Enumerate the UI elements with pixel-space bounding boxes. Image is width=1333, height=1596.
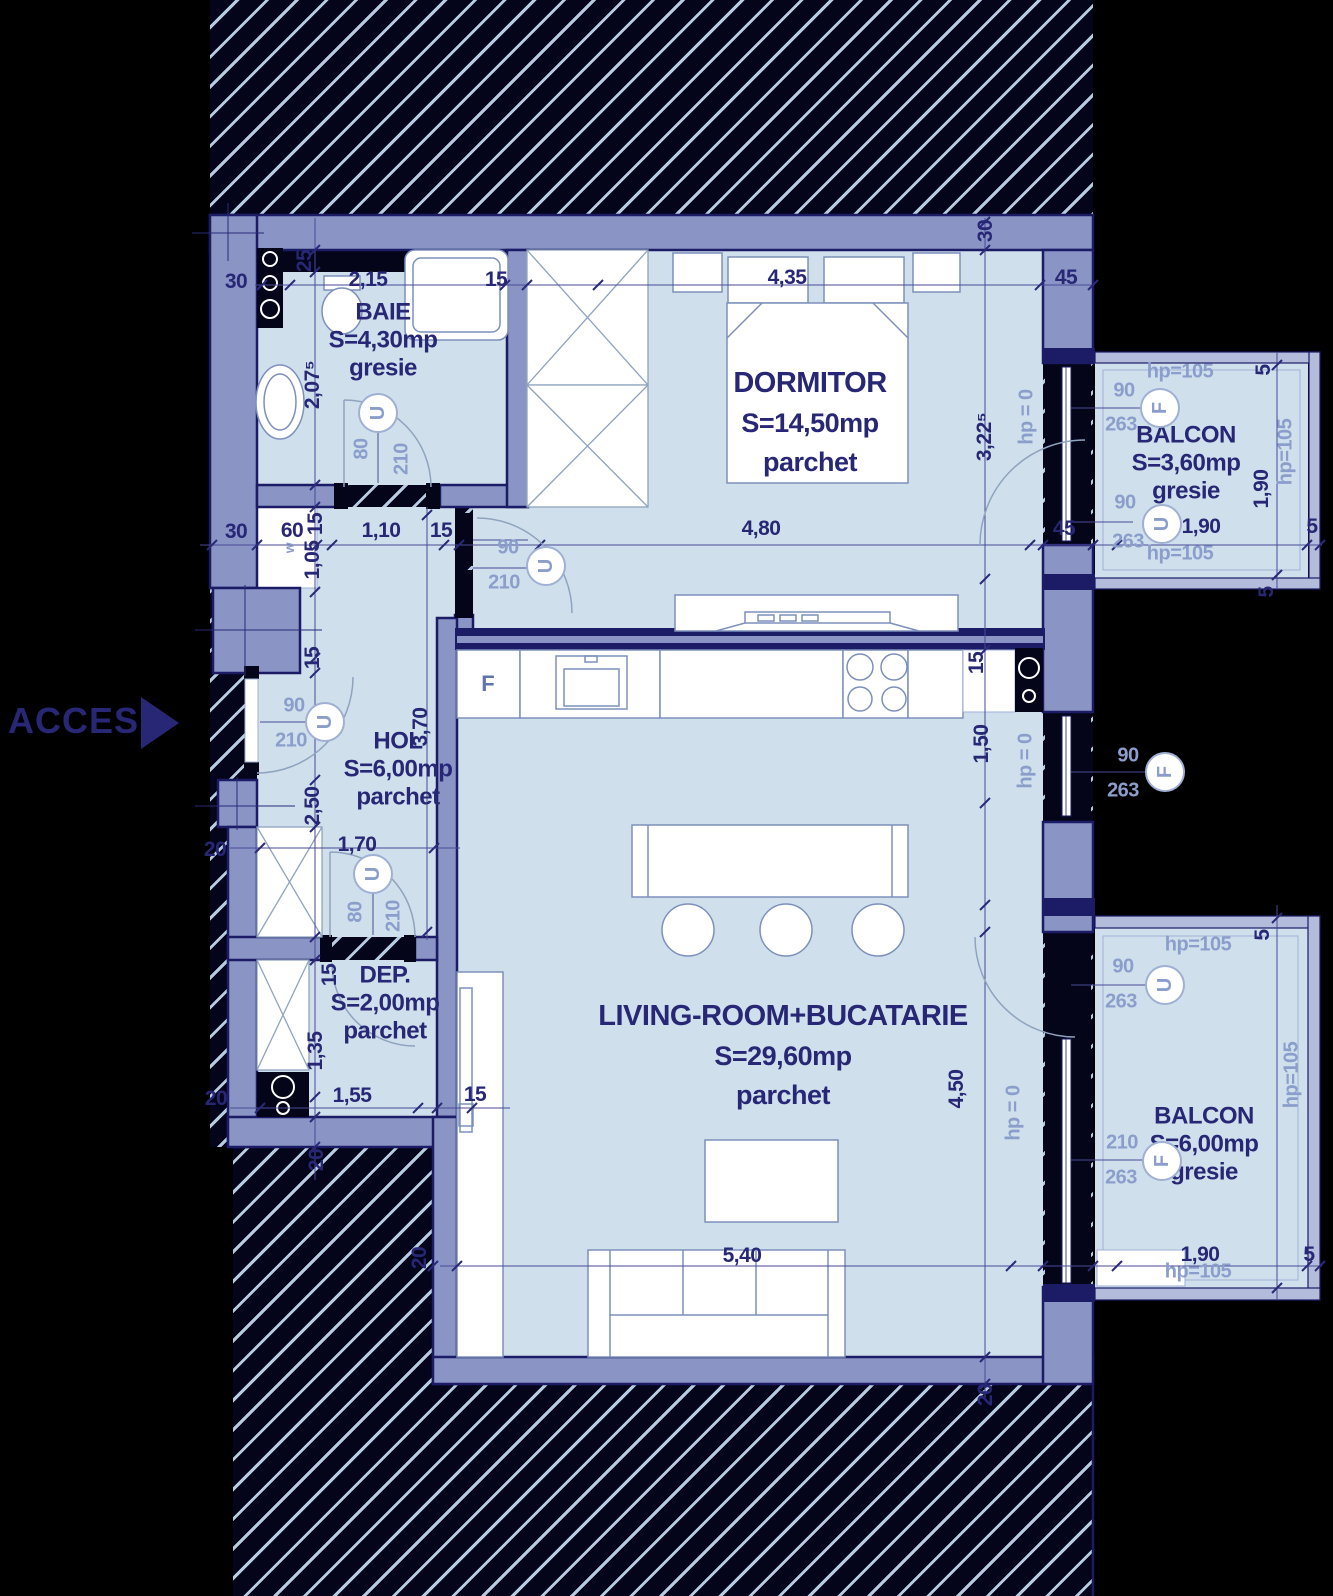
opening-size-label: hp = 0 [1015, 733, 1038, 788]
opening-size-label: 80 [345, 901, 368, 922]
dimension-label: 5 [1303, 1243, 1314, 1267]
dimension-label: 45 [1053, 517, 1075, 541]
wall-living-west [433, 1117, 457, 1384]
dimension-label: 20 [305, 1149, 329, 1171]
opening-size-label: 263 [1105, 414, 1137, 437]
opening-size-label: 90 [1114, 492, 1135, 515]
dimension-label: 4,35 [768, 266, 807, 290]
window-marker: F [1145, 752, 1185, 792]
dimension-label: 5 [1255, 586, 1279, 597]
window-marker: F [1140, 388, 1180, 428]
room-name-text: HOL [344, 727, 453, 755]
dimension-label: 1,05 [301, 541, 325, 580]
room-name-text: BALCON [1132, 421, 1241, 449]
door-marker: U [1142, 504, 1182, 544]
coffee-table [705, 1140, 838, 1222]
baie-sink [256, 365, 304, 439]
dimension-label: 2,15 [349, 268, 388, 292]
room-label-balcon-sus: BALCONS=3,60mpgresie [1132, 421, 1241, 504]
room-label-dep: DEP.S=2,00mpparchet [331, 961, 440, 1044]
room-floor-text: gresie [1132, 477, 1241, 505]
chair [852, 904, 904, 956]
counter-sink-cell [520, 650, 660, 718]
window-marker: F [1142, 1141, 1182, 1181]
wall-top [210, 215, 1093, 250]
opening-size-label: hp=105 [1281, 1042, 1304, 1108]
opening-size-label: hp=105 [1165, 934, 1231, 957]
dimension-label: 15 [485, 268, 507, 292]
opening-size-label: 263 [1105, 991, 1137, 1014]
dimension-label: 5 [1306, 515, 1317, 539]
dimension-label: 15 [965, 652, 989, 674]
wall-left-lower [228, 827, 257, 1147]
door-marker: U [353, 854, 393, 894]
dimension-label: 15 [430, 519, 452, 543]
dimension-label: 3,22⁵ [973, 413, 997, 461]
dimension-label: 30 [974, 220, 998, 242]
wall-hol-living [437, 618, 457, 1117]
access-arrow-icon [141, 697, 179, 749]
dimension-label: 20 [974, 1384, 998, 1406]
chair [662, 904, 714, 956]
dimension-label: 5,40 [723, 1244, 762, 1268]
room-floor-text: gresie [329, 354, 438, 382]
dimension-label: 45 [1055, 266, 1077, 290]
room-floor-text: parchet [331, 1017, 440, 1045]
opening-size-label: 210 [275, 730, 307, 753]
dimension-label: 5 [1252, 364, 1276, 375]
dimension-label: 1,55 [333, 1084, 372, 1108]
opening-size-label: 90 [1113, 380, 1134, 403]
opening-size-label: 90 [1112, 956, 1133, 979]
room-area-text: S=29,60mp [598, 1037, 967, 1075]
opening-size-label: hp=105 [1147, 543, 1213, 566]
room-area-text: S=2,00mp [331, 989, 440, 1017]
dimension-label: 2,50 [301, 787, 325, 826]
dimension-label: 1,10 [362, 519, 401, 543]
chair [760, 904, 812, 956]
wall-bottom [433, 1357, 1093, 1384]
opening-size-label: hp = 0 [1016, 389, 1039, 444]
room-floor-text: parchet [733, 443, 886, 481]
dimension-label: 20 [408, 1247, 432, 1269]
room-name-text: DEP. [331, 961, 440, 989]
opening-size-label: 263 [1107, 780, 1139, 803]
opening-size-label: 210 [1106, 1132, 1138, 1155]
dimension-label: 4,80 [742, 517, 781, 541]
dimension-label: 3,70 [409, 708, 433, 747]
room-area-text: S=6,00mp [344, 755, 453, 783]
opening-size-label: 210 [383, 900, 406, 932]
dimension-label: 25 [293, 250, 317, 272]
dimension-label: 1,90 [1250, 470, 1274, 509]
access-label: ACCES [8, 700, 139, 742]
dimension-label: 20 [205, 1087, 227, 1111]
room-name-text: BALCON [1150, 1102, 1259, 1130]
baie-washer-column [257, 248, 283, 328]
dimension-label: 1,35 [304, 1032, 328, 1071]
dimension-label: 60 [281, 519, 303, 543]
fridge-label: F [481, 671, 494, 697]
pillow-right [824, 257, 904, 303]
room-area-text: S=4,30mp [329, 326, 438, 354]
room-area-text: S=3,60mp [1132, 449, 1241, 477]
opening-size-label: 90 [283, 695, 304, 718]
opening-size-label: hp=105 [1147, 361, 1213, 384]
room-name-text: LIVING-ROOM+BUCATARIE [598, 996, 967, 1037]
room-label-hol: HOLS=6,00mpparchet [344, 727, 453, 810]
opening-size-label: hp=105 [1275, 419, 1298, 485]
opening-size-label: 263 [1112, 531, 1144, 554]
opening-size-label: 210 [391, 443, 414, 475]
dimension-label: 15 [318, 964, 342, 986]
room-name-text: BAIE [329, 298, 438, 326]
dimension-label: 1,90 [1182, 515, 1221, 539]
dining-table [632, 825, 908, 897]
opening-size-label: w [281, 543, 297, 553]
washing-machine [257, 1072, 309, 1117]
room-area-text: S=14,50mp [733, 404, 886, 442]
room-floor-text: parchet [598, 1076, 967, 1114]
opening-size-label: hp = 0 [1003, 1085, 1026, 1140]
opening-size-label: 90 [497, 537, 518, 560]
room-floor-text: parchet [344, 783, 453, 811]
door-marker: U [358, 393, 398, 433]
nightstand-right [913, 253, 960, 292]
dimension-label: 30 [225, 520, 247, 544]
opening-size-label: 263 [1105, 1167, 1137, 1190]
dimension-label: 15 [304, 513, 328, 535]
opening-size-label: 210 [488, 572, 520, 595]
dimension-label: 5 [1251, 929, 1275, 940]
room-label-baie: BAIES=4,30mpgresie [329, 298, 438, 381]
wall-right-2 [1043, 545, 1093, 712]
dimension-label: 20 [204, 838, 226, 862]
dimension-label: 4,50 [945, 1070, 969, 1109]
counter [660, 650, 843, 718]
dimension-label: 15 [464, 1083, 486, 1107]
room-label-dormitor: DORMITORS=14,50mpparchet [733, 363, 886, 481]
opening-size-label: 80 [351, 438, 374, 459]
dimension-label: 30 [225, 270, 247, 294]
floor-plan-stage: ACCES BAIES=4,30mpgresieDORMITORS=14,50m… [0, 0, 1333, 1596]
dormitor-dresser [675, 595, 958, 631]
room-name-text: DORMITOR [733, 363, 886, 404]
door-marker: U [526, 546, 566, 586]
door-marker: U [305, 702, 345, 742]
opening-size-label: hp=105 [1165, 1261, 1231, 1284]
wall-dep-bottom [228, 1117, 457, 1147]
nightstand-left [673, 253, 722, 292]
dimension-label: 15 [301, 647, 325, 669]
dimension-label: 1,50 [970, 725, 994, 764]
opening-size-label: 90 [1117, 745, 1138, 768]
door-marker: U [1145, 965, 1185, 1005]
dimension-label: 2,07⁵ [301, 361, 325, 409]
room-label-living: LIVING-ROOM+BUCATARIES=29,60mpparchet [598, 996, 967, 1114]
